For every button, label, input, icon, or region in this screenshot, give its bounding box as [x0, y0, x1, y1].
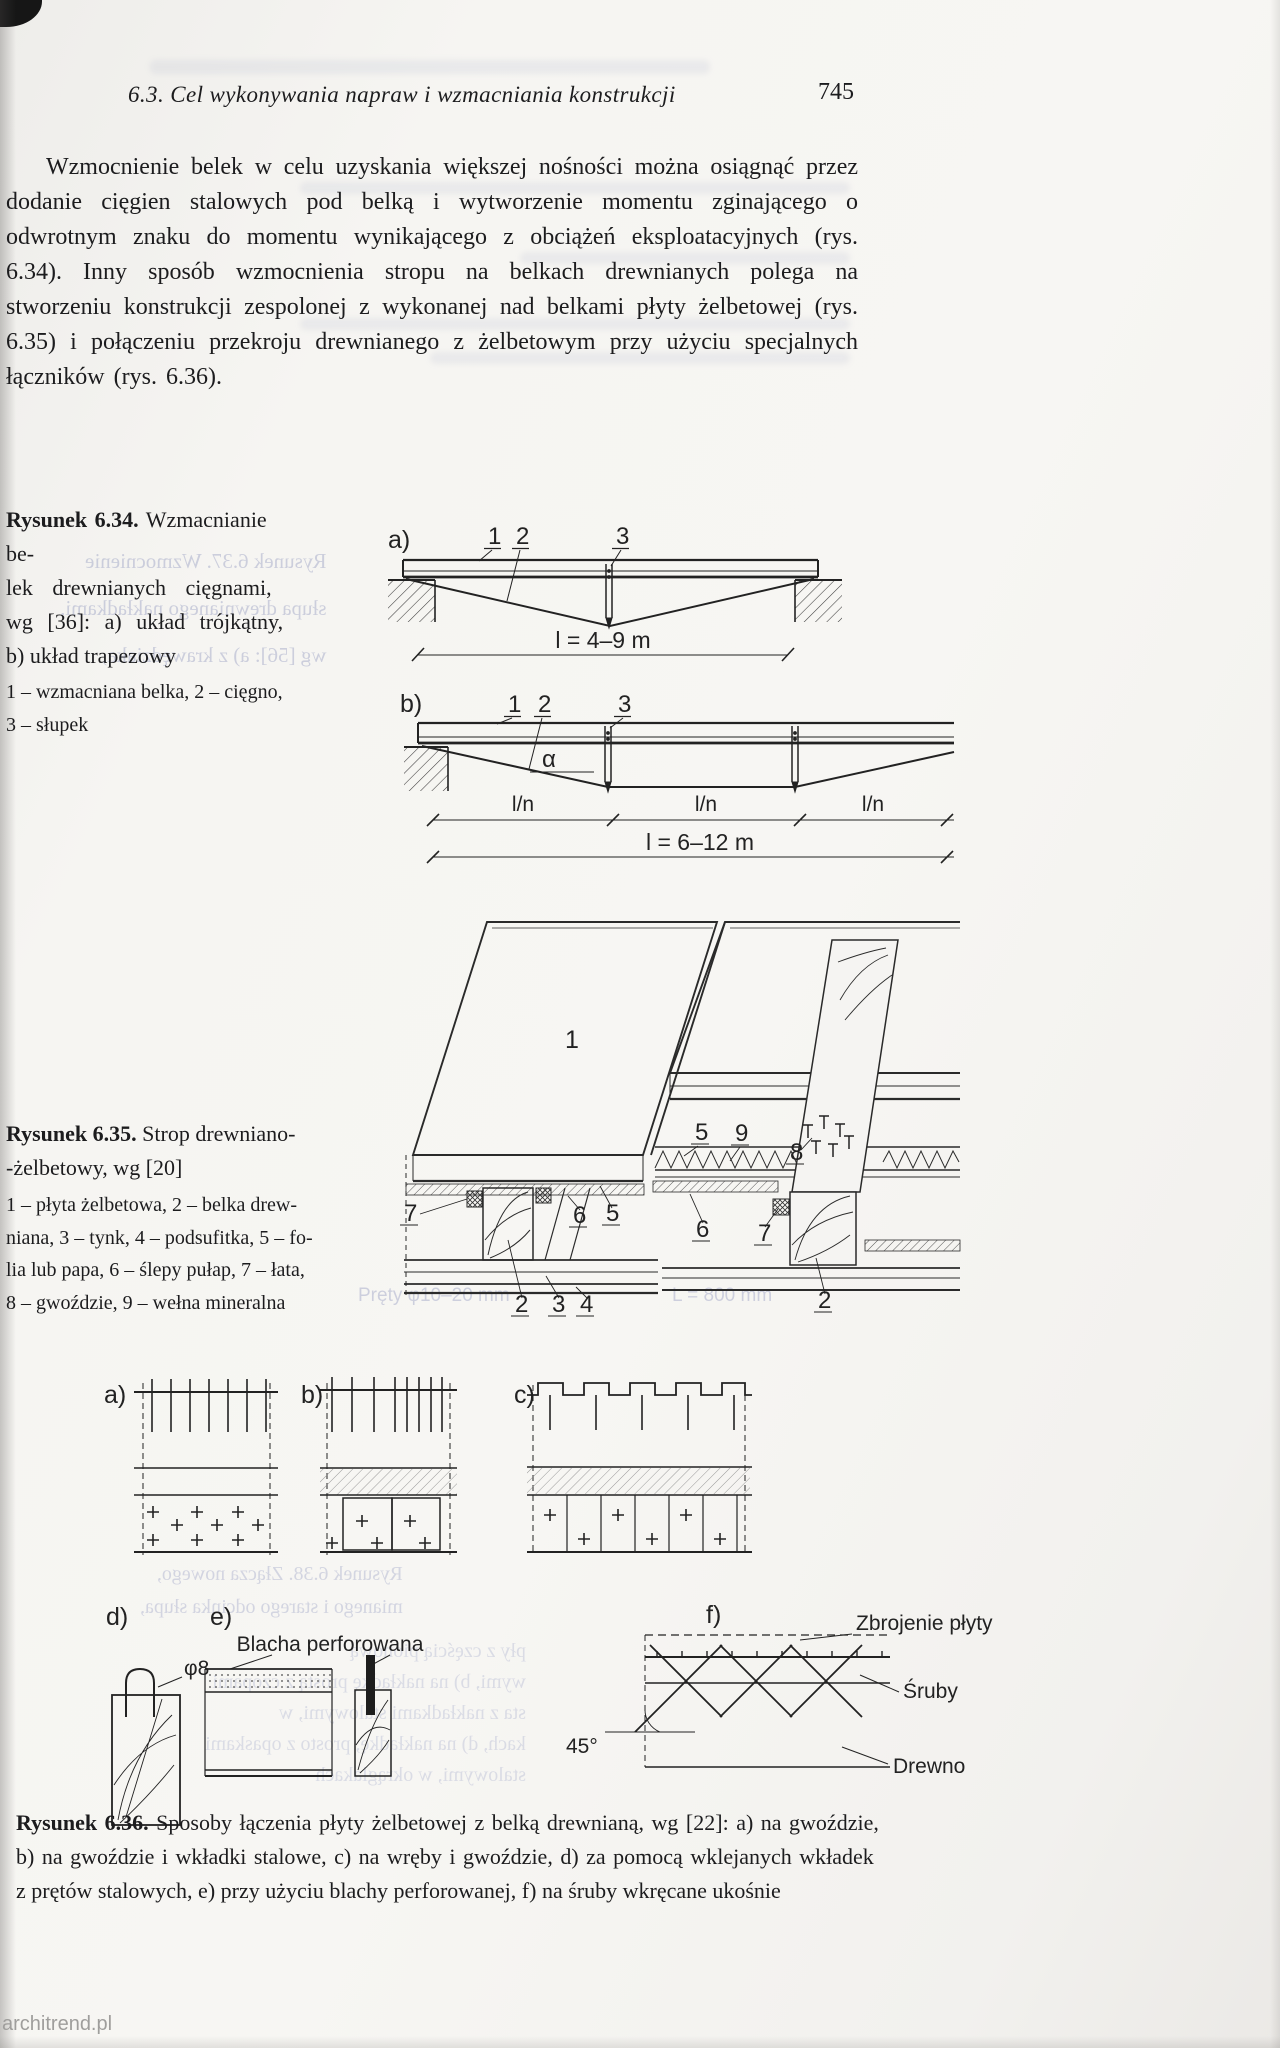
scanned-book-page: Rysunek 6.37. Wzmocnienie słupa drewnian… [0, 0, 1280, 2048]
body-paragraph: Wzmocnienie belek w celu uzyskania więks… [6, 150, 858, 395]
strut-post [606, 564, 612, 628]
watermark: architrend.pl [2, 2013, 112, 2036]
panel-e-perforated-plate: e) Blacha perforowana [205, 1603, 424, 1776]
edge-shadow-bottom [0, 2036, 1280, 2048]
wood-beam-right [773, 940, 898, 1265]
page-number: 745 [818, 79, 854, 106]
panel-c-notches: c) [514, 1381, 752, 1555]
caption-line: b) układ trapezowy [6, 639, 298, 673]
figure-6-34-caption: Rysunek 6.34. Wzmacnianie be- lek drewni… [6, 503, 298, 741]
caption-line: Sposoby łączenia płyty żelbetowej z belk… [156, 1810, 879, 1835]
figure-number: Rysunek 6.35. [6, 1121, 137, 1146]
legend-line: 1 – wzmacniana belka, 2 – cięgno, [6, 676, 298, 709]
panel-d-glued-rod: d) φ8 [106, 1603, 209, 1825]
figure-6-36-panels-abc: a) b) [100, 1375, 960, 1560]
label-7-right: 7 [758, 1220, 771, 1247]
caption-line: b) na gwoździe i wkładki stalowe, c) na … [16, 1840, 966, 1874]
dimension-line: l = 4–9 m [412, 627, 794, 661]
beam [403, 560, 818, 577]
figure-6-35-diagram: 1 1 [340, 700, 960, 1340]
label-7-left: 7 [404, 1200, 417, 1227]
label-9-welna: 9 [735, 1120, 748, 1147]
panel-label-d: d) [106, 1603, 128, 1631]
part-labels: 1 2 3 [479, 523, 629, 601]
wood-label: Drewno [893, 1755, 965, 1778]
ceiling-layers-left [404, 1155, 658, 1297]
part-label-1: 1 [488, 523, 501, 550]
panel-a-nailed: a) [104, 1379, 278, 1555]
angle-label: 45° [566, 1735, 598, 1758]
figure-number: Rysunek 6.36. [16, 1810, 149, 1835]
support-hatch-right [795, 580, 842, 622]
legend-line: 8 – gwoździe, 9 – wełna mineralna [6, 1287, 314, 1320]
caption-line: Strop drewniano- [142, 1121, 295, 1146]
label-5-top: 5 [695, 1119, 708, 1146]
part-labels: 7 6 5 2 3 4 5 9 8 6 [400, 1119, 832, 1318]
label-6-left: 6 [573, 1202, 586, 1229]
figure-number: Rysunek 6.34. [6, 507, 139, 532]
bleed-smudge [150, 60, 710, 74]
slab-reinforcement-label: Zbrojenie płyty [856, 1612, 993, 1635]
steel-rod-loop [126, 1669, 154, 1695]
legend-line: niana, 3 – tynk, 4 – podsufitka, 5 – fo- [6, 1222, 314, 1255]
panel-label-e: e) [210, 1603, 232, 1631]
label-5-left: 5 [606, 1200, 619, 1227]
span-dimension: l = 4–9 m [555, 627, 650, 653]
label-3-tynk: 3 [552, 1291, 565, 1318]
part-label-2: 2 [516, 523, 529, 550]
panel-label-f: f) [706, 1601, 721, 1629]
part-label-3: 3 [616, 523, 629, 550]
edge-shadow-right [1270, 0, 1280, 2048]
figure-6-36-caption: Rysunek 6.36. Sposoby łączenia płyty żel… [16, 1806, 966, 1908]
caption-line: wg [36]: a) układ trójkątny, [6, 605, 298, 639]
wood-beam-left [467, 1188, 590, 1260]
panel-b-nails-inserts: b) [301, 1377, 457, 1555]
panel-label-a: a) [388, 526, 410, 554]
label-6-right: 6 [696, 1216, 709, 1243]
figure-6-35-caption: Rysunek 6.35. Strop drewniano- -żelbetow… [6, 1117, 314, 1319]
legend-line: lia lub papa, 6 – ślepy pułap, 7 – łata, [6, 1254, 314, 1287]
legend-line: 1 – płyta żelbetowa, 2 – belka drew- [6, 1189, 314, 1222]
support-hatch-left [388, 580, 435, 622]
section-heading: 6.3. Cel wykonywania napraw i wzmacniani… [128, 82, 676, 108]
bleed-line: Rysunek 6.38. Złącza nowego, [140, 1558, 403, 1591]
label-slab-left: 1 [565, 1026, 579, 1054]
label-4-podsufitka: 4 [580, 1291, 593, 1318]
caption-line: lek drewnianych cięgnami, [6, 571, 298, 605]
panel-label-b: b) [301, 1381, 323, 1409]
panel-label-a: a) [104, 1381, 126, 1409]
figure-6-36-panels-def: d) φ8 e) Blacha perforowana [100, 1595, 990, 1825]
caption-line: -żelbetowy, wg [20] [6, 1151, 314, 1185]
label-8-gwozdzie: 8 [790, 1139, 803, 1166]
caption-line: z prętów stalowych, e) przy użyciu blach… [16, 1874, 966, 1908]
perforated-plate-label: Blacha perforowana [237, 1633, 424, 1656]
legend-line: 3 – słupek [6, 709, 298, 742]
screws-label: Śruby [903, 1679, 958, 1703]
steel-plate [366, 1655, 375, 1715]
panel-f-inclined-screws: f) 45° Zbrojenie płyty [566, 1601, 993, 1778]
screw-x-marks [635, 1645, 862, 1732]
figure-6-34-diagram-a: a) 1 2 [340, 520, 840, 670]
